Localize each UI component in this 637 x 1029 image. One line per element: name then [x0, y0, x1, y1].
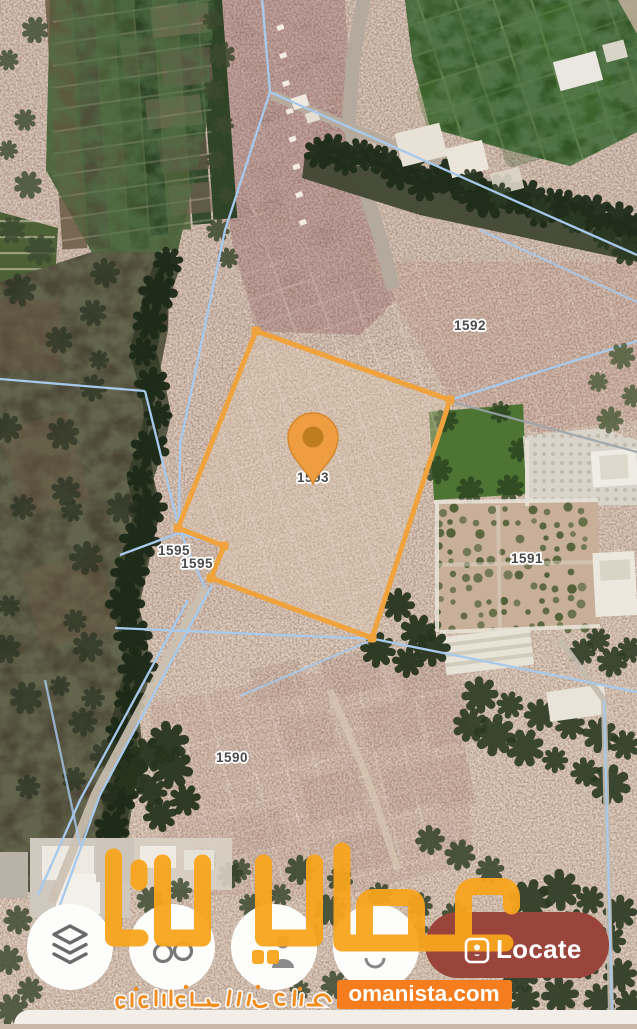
- svg-text:Locate: Locate: [496, 934, 582, 964]
- svg-text:1595: 1595: [181, 556, 213, 571]
- svg-text:1592: 1592: [454, 318, 486, 333]
- svg-text:omanista.com: omanista.com: [348, 981, 499, 1006]
- svg-text:1591: 1591: [511, 551, 543, 566]
- svg-text:1590: 1590: [216, 750, 248, 765]
